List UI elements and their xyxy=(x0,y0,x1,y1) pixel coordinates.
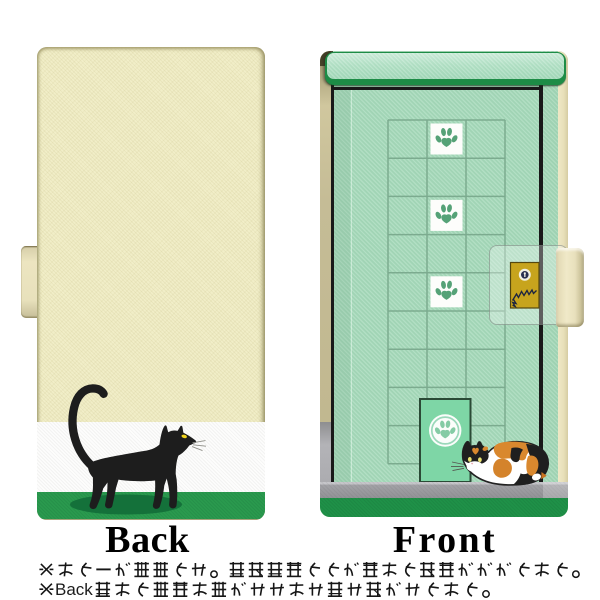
svg-text:Back: Back xyxy=(55,580,93,599)
